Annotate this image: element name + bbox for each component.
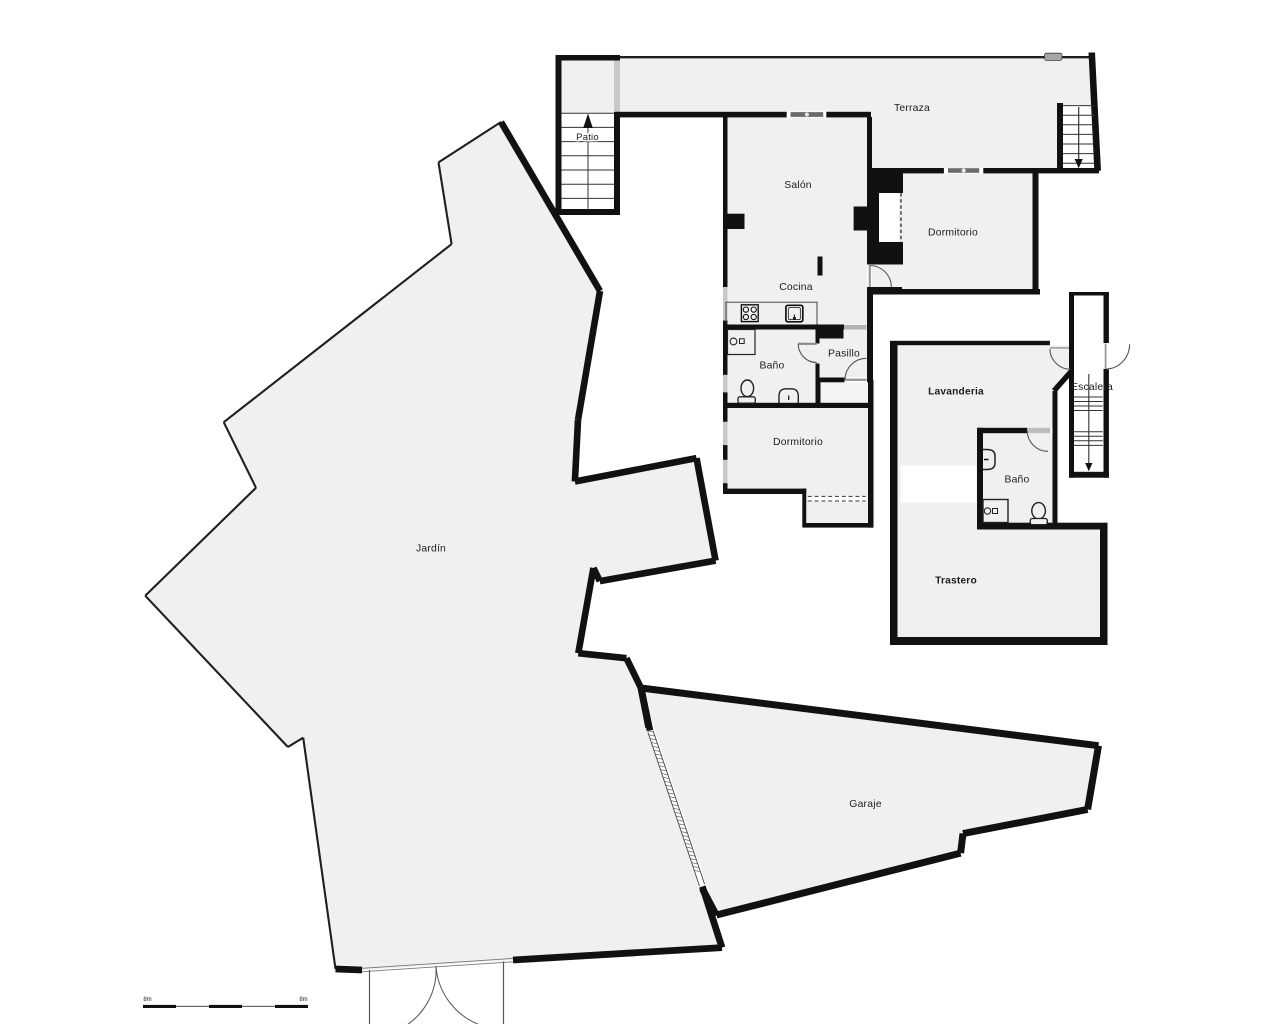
svg-text:Salón: Salón — [784, 180, 812, 191]
svg-text:Patio: Patio — [576, 132, 599, 143]
svg-text:Baño: Baño — [759, 361, 784, 372]
svg-text:Lavanderia: Lavanderia — [928, 386, 984, 397]
svg-text:Jardín: Jardín — [416, 544, 446, 555]
svg-text:8m: 8m — [143, 997, 151, 1003]
svg-text:Dormitorio: Dormitorio — [773, 437, 823, 448]
svg-text:8m: 8m — [299, 997, 307, 1003]
svg-text:Garaje: Garaje — [849, 799, 881, 810]
svg-text:Pasillo: Pasillo — [828, 349, 860, 360]
svg-text:Baño: Baño — [1004, 475, 1029, 486]
svg-text:Terraza: Terraza — [894, 103, 930, 114]
svg-text:Trastero: Trastero — [935, 575, 977, 586]
svg-text:Dormitorio: Dormitorio — [928, 228, 978, 239]
svg-text:Escalera: Escalera — [1071, 382, 1113, 393]
svg-text:Cocina: Cocina — [779, 282, 813, 293]
